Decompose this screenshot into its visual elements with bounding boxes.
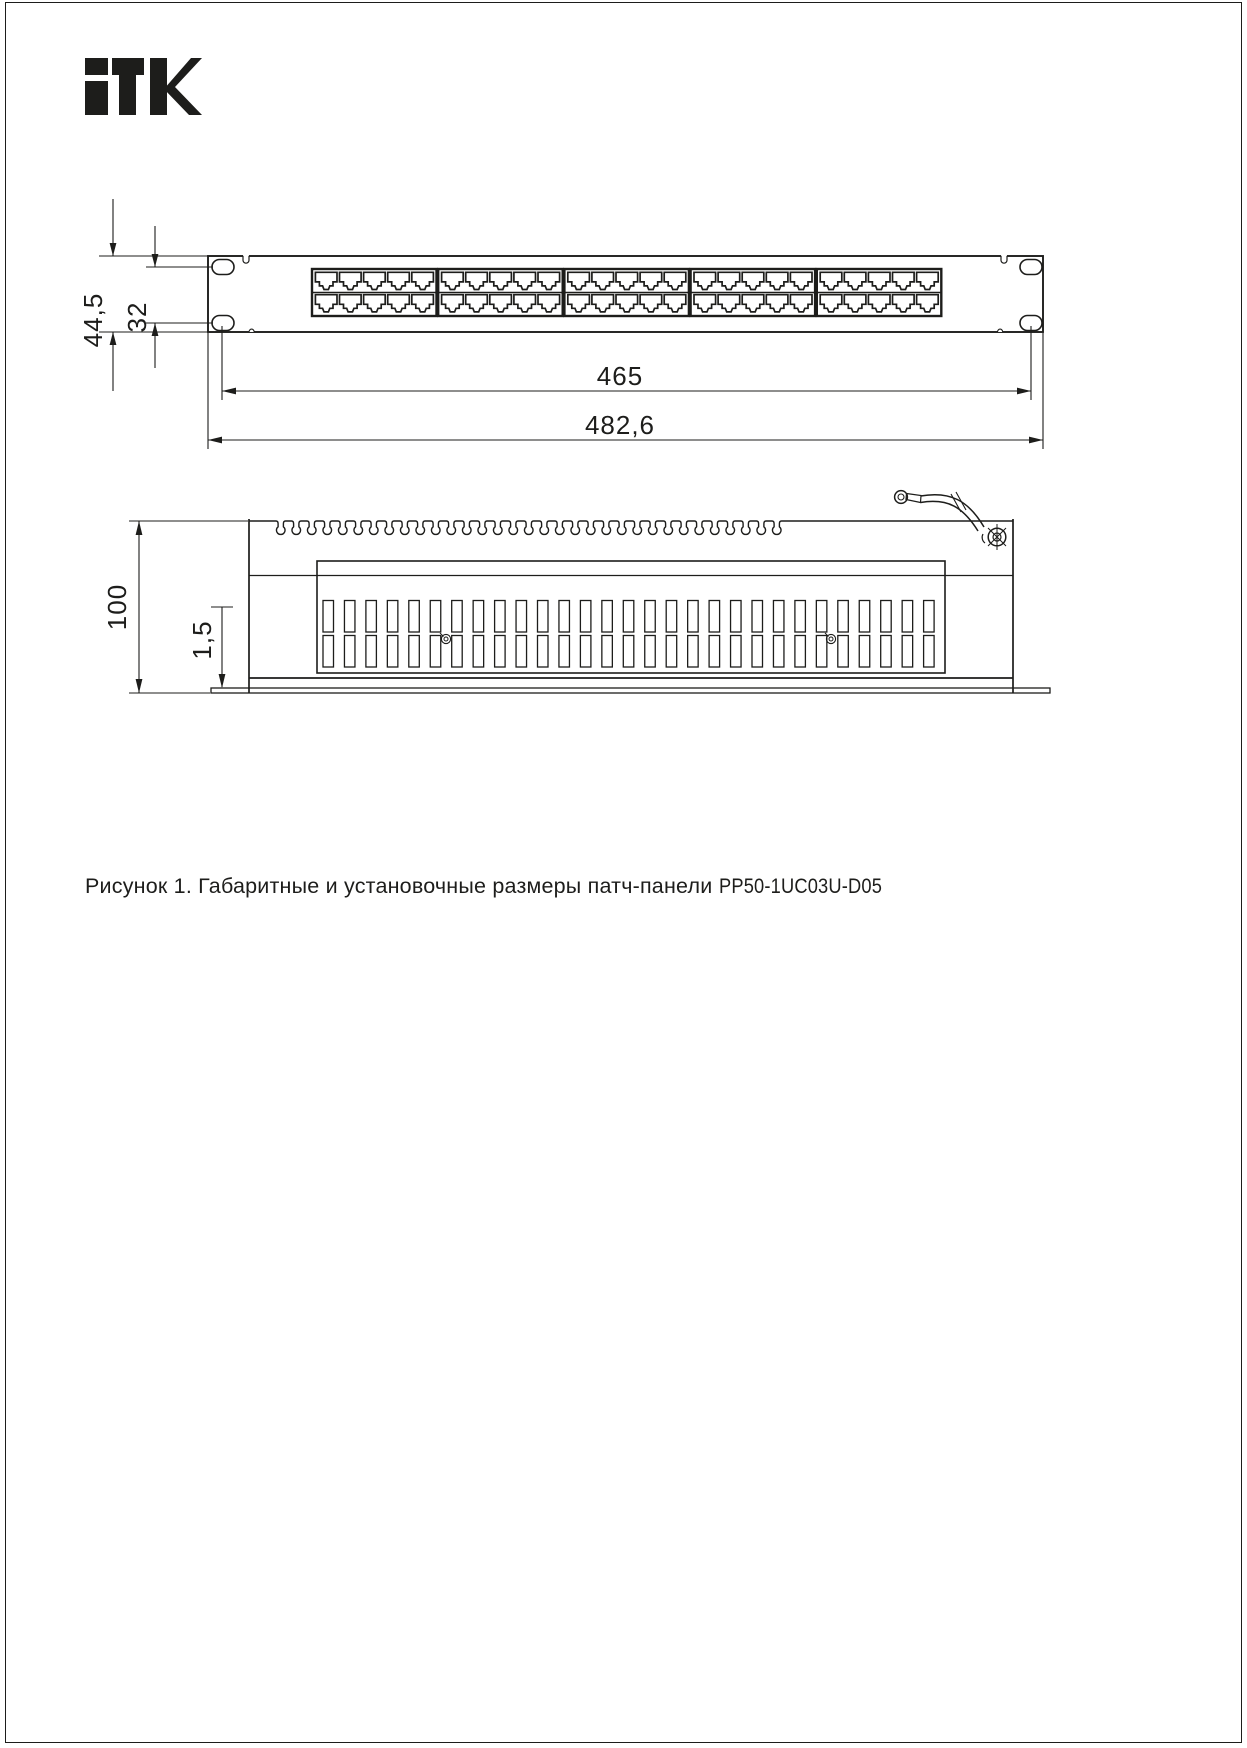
rj45-port [868,272,890,289]
rj45-port [592,295,614,312]
rj45-port [917,295,939,312]
vent-slot [580,636,591,668]
rj45-port [820,295,842,312]
rj45-port [490,272,512,289]
vent-slot [795,601,806,633]
rj45-port [893,295,915,312]
vent-slot [538,636,549,668]
caption-model-number: PP50-1UC03U-D05 [719,874,882,899]
rj45-port [640,295,662,312]
vent-slot [902,601,913,633]
rj45-port [442,272,464,289]
vent-slot [773,601,784,633]
dim-label-1-5: 1,5 [187,620,217,659]
rj45-port [315,272,337,289]
rj45-port [388,272,410,289]
vent-slot [623,601,634,633]
rj45-port [694,272,716,289]
vent-slot [387,601,398,633]
rj45-port [616,272,638,289]
ground-screw [982,524,1006,550]
rj45-port [790,295,812,312]
vent-slot [924,601,935,633]
ground-wire [895,491,984,531]
rj45-port [766,295,788,312]
cable-manager-edge [249,521,1013,534]
rj45-port [790,272,812,289]
dim-label-482-6: 482,6 [585,410,655,440]
vent-slot [859,601,870,633]
vent-slot [323,636,334,668]
rj45-port [694,295,716,312]
dim-hole-offset: 32 [122,226,213,368]
dim-label-100: 100 [102,584,132,630]
rj45-port [490,295,512,312]
dim-label-465: 465 [597,361,643,391]
vent-slot [752,636,763,668]
rj45-port [718,272,740,289]
rj45-port [514,295,536,312]
vent-slot [666,636,677,668]
vent-slot [688,636,699,668]
datasheet-page: 44,5 32 465 482,6 [0,0,1247,1748]
vent-slot [323,601,334,633]
vent-slot [795,636,806,668]
vent-slot [430,636,441,668]
rj45-port [893,272,915,289]
vent-slot [366,601,377,633]
rj45-port [568,295,590,312]
vent-slots [323,601,934,668]
vent-slot [473,601,484,633]
rj45-port [538,272,560,289]
rj45-port [340,272,362,289]
vent-slot [452,636,463,668]
vent-slot [495,636,506,668]
rj45-port [364,272,386,289]
front-view: 44,5 32 465 482,6 [78,199,1043,449]
rj45-port [514,272,536,289]
vent-slot [344,601,355,633]
rj45-port [820,272,842,289]
vent-slot [495,601,506,633]
vent-slot [602,636,613,668]
vent-slot [881,636,892,668]
vent-slot [473,636,484,668]
vent-slot [516,636,527,668]
vent-slot [924,636,935,668]
vent-slot [409,636,420,668]
vent-slot [816,636,827,668]
rj45-port [640,272,662,289]
rj45-port [868,295,890,312]
dim-label-32: 32 [122,302,152,333]
figure-caption: Рисунок 1. Габаритные и установочные раз… [85,874,1085,899]
rj45-port [388,295,410,312]
vent-slot [709,601,720,633]
side-view: 100 1,5 [102,491,1050,693]
dim-overall-height: 44,5 [78,199,208,391]
vent-slot [688,601,699,633]
vent-slot [366,636,377,668]
vent-slot [859,636,870,668]
rj45-port [466,295,488,312]
vent-slot [709,636,720,668]
rj45-port [766,272,788,289]
vent-slot [409,601,420,633]
front-plate-edge [211,688,1050,693]
vent-slot [838,636,849,668]
vent-slot [881,601,892,633]
dim-panel-thickness: 1,5 [187,607,233,688]
rj45-port [718,295,740,312]
vent-slot [580,601,591,633]
rj45-port [742,295,764,312]
vent-screws [440,633,836,644]
vent-slot [645,636,656,668]
vent-slot [430,601,441,633]
vent-slot [344,636,355,668]
rj45-port [442,295,464,312]
rj45-port-field [312,269,941,316]
rj45-port [538,295,560,312]
vent-slot [838,601,849,633]
vent-slot [623,636,634,668]
vent-slot [452,601,463,633]
vent-slot [666,601,677,633]
vent-slot [752,601,763,633]
rj45-port [742,272,764,289]
rj45-port [844,272,866,289]
rj45-port [364,295,386,312]
dim-mount-hole-span: 465 [222,326,1031,400]
vent-slot [645,601,656,633]
rj45-port [315,295,337,312]
dim-label-44-5: 44,5 [78,293,108,348]
vent-slot [516,601,527,633]
vent-slot [902,636,913,668]
vent-slot [387,636,398,668]
rj45-port [568,272,590,289]
vent-slot [731,636,742,668]
vent-slot [559,636,570,668]
vent-slot [559,601,570,633]
vent-slot [602,601,613,633]
rj45-port [412,295,434,312]
rj45-port [616,295,638,312]
vent-slot [773,636,784,668]
rj45-port [917,272,939,289]
rj45-port [466,272,488,289]
rj45-port [844,295,866,312]
rj45-port [592,272,614,289]
rj45-port [412,272,434,289]
vent-slot [731,601,742,633]
vent-slot [538,601,549,633]
rj45-port [664,295,686,312]
rj45-port [664,272,686,289]
rj45-port [340,295,362,312]
vent-panel-outline [317,561,945,673]
caption-text: Рисунок 1. Габаритные и установочные раз… [85,874,719,898]
vent-slot [816,601,827,633]
